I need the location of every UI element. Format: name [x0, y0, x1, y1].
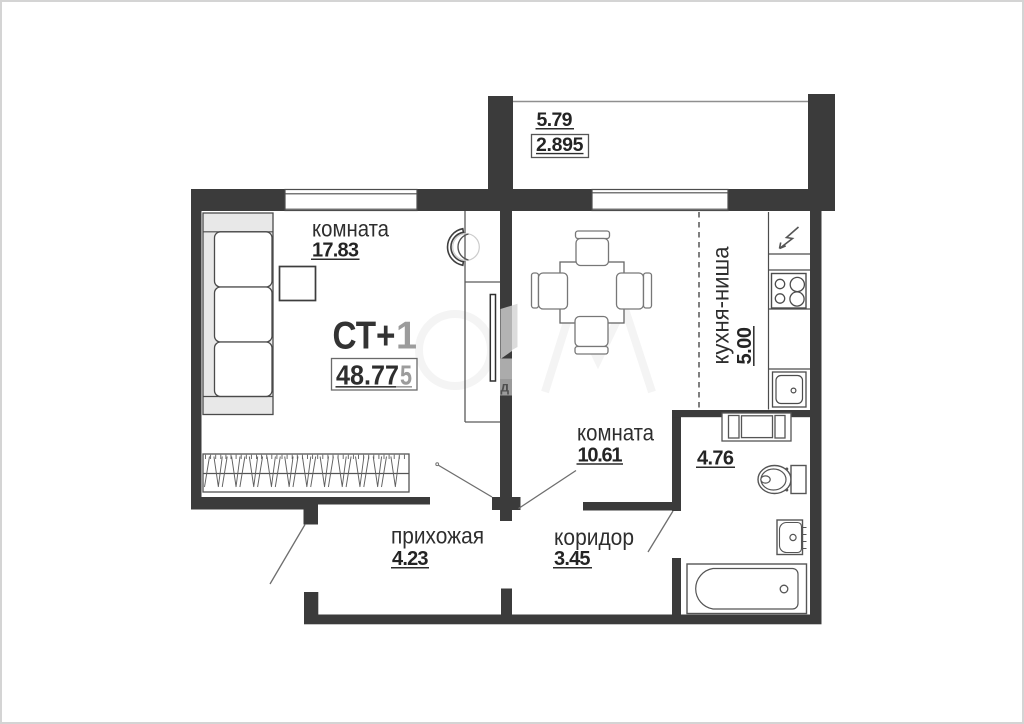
svg-text:коридор: коридор	[554, 524, 634, 550]
svg-text:СТ+: СТ+	[333, 315, 396, 358]
svg-text:5: 5	[400, 360, 412, 391]
svg-text:5.00: 5.00	[734, 327, 756, 365]
svg-text:17.83: 17.83	[312, 240, 359, 262]
svg-text:3.45: 3.45	[554, 548, 591, 570]
svg-text:д: д	[501, 380, 510, 395]
svg-text:кухня-ниша: кухня-ниша	[708, 246, 734, 364]
svg-text:комната: комната	[312, 216, 389, 242]
svg-text:комната: комната	[577, 420, 654, 446]
svg-text:прихожая: прихожая	[391, 523, 484, 549]
svg-text:10.61: 10.61	[578, 445, 623, 467]
svg-text:48.77: 48.77	[336, 360, 399, 391]
svg-text:4.76: 4.76	[697, 448, 734, 470]
svg-text:2.895: 2.895	[536, 134, 584, 156]
svg-text:5.79: 5.79	[537, 109, 573, 131]
svg-text:1: 1	[396, 315, 417, 358]
svg-text:4.23: 4.23	[392, 548, 429, 570]
